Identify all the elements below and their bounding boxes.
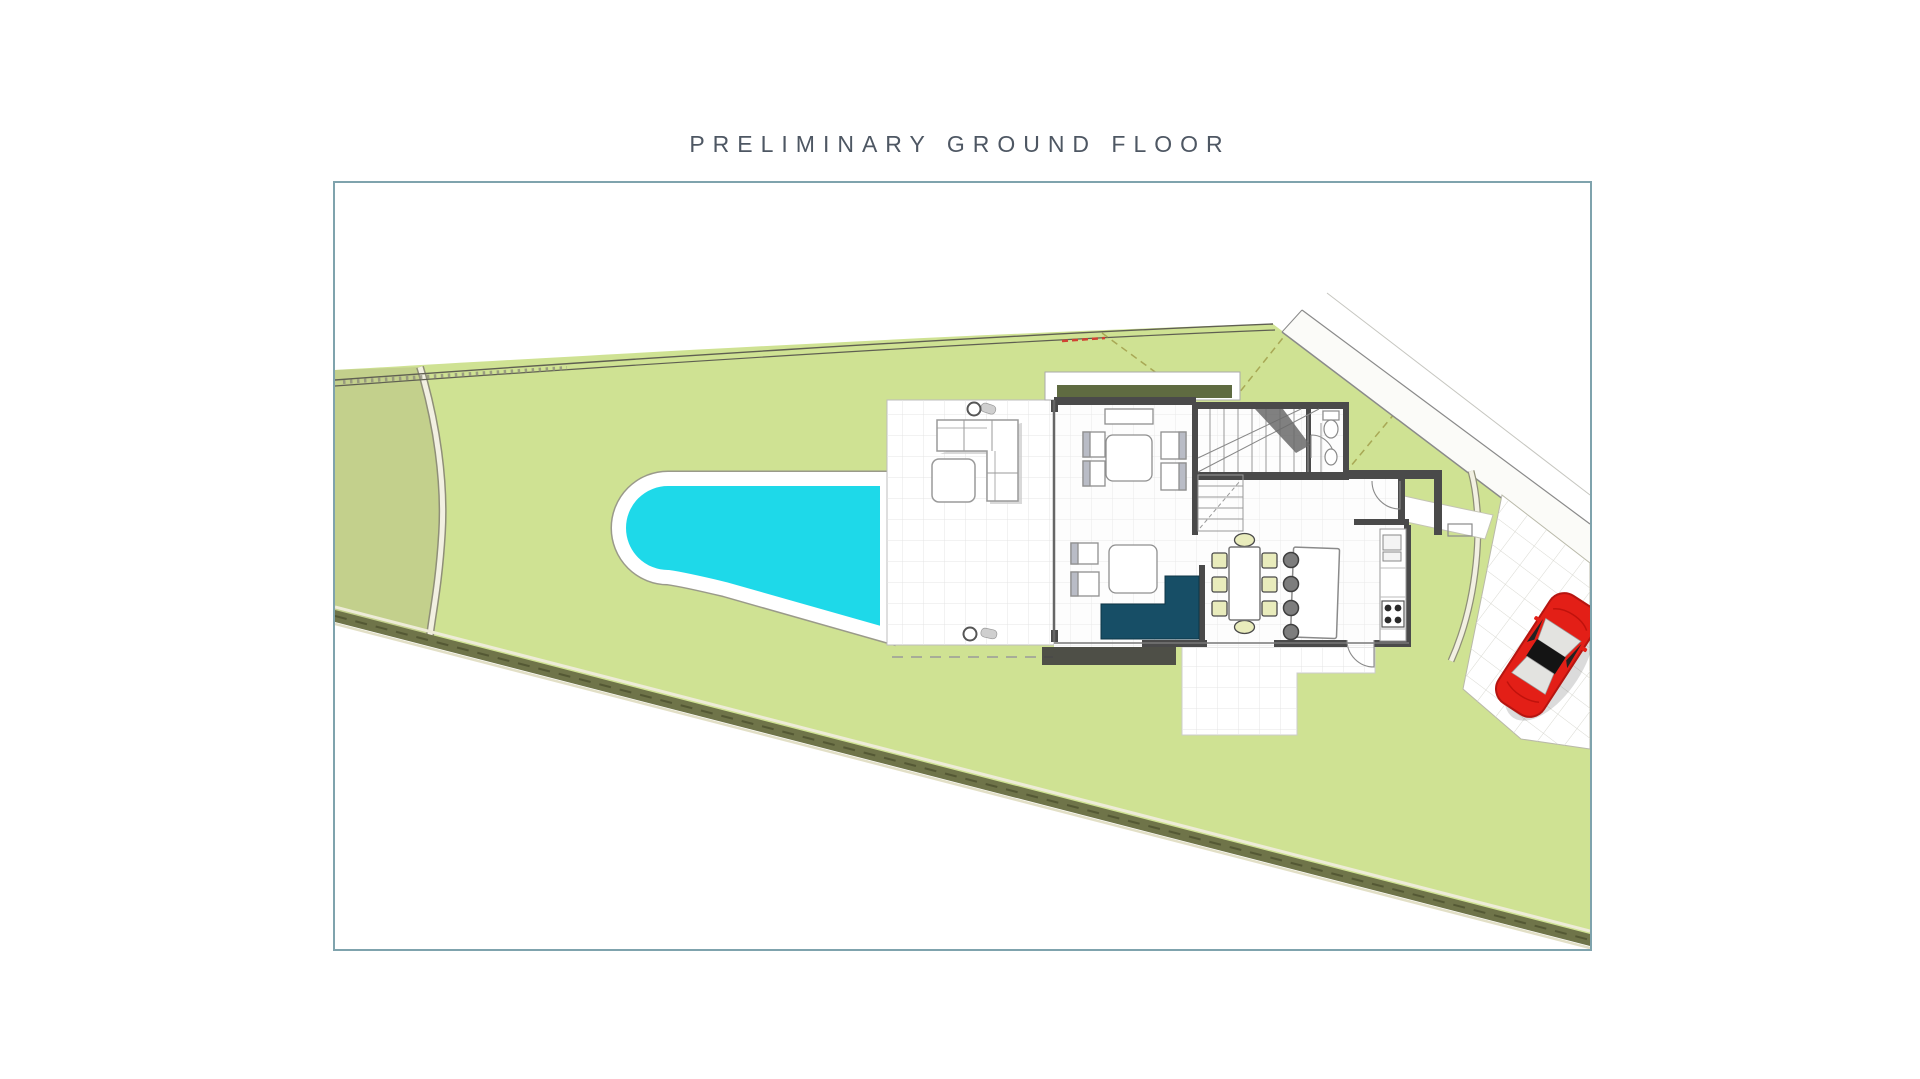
toilet-bowl <box>1324 420 1338 438</box>
floor-plan-frame <box>333 181 1592 951</box>
bathroom-sink <box>1325 449 1337 465</box>
south-shadow-wall <box>1042 647 1176 665</box>
page-title: PRELIMINARY GROUND FLOOR <box>689 131 1230 158</box>
cooktop <box>1382 601 1404 627</box>
terrace-column-south <box>964 628 977 641</box>
outdoor-coffee-table <box>932 459 975 502</box>
kitchen-sink <box>1383 535 1401 550</box>
ottoman <box>1109 545 1157 593</box>
terrace-column-north <box>968 403 981 416</box>
dining-table <box>1229 547 1260 620</box>
console-table <box>1105 409 1153 424</box>
center-table <box>1106 435 1152 481</box>
floor-plan-figure <box>335 183 1590 949</box>
toilet-tank <box>1323 411 1339 420</box>
kitchen-counter <box>1380 529 1406 641</box>
kitchen-island-group <box>1284 547 1340 639</box>
pool-terrace <box>887 400 1054 657</box>
north-roof-band-olive <box>1057 385 1232 398</box>
